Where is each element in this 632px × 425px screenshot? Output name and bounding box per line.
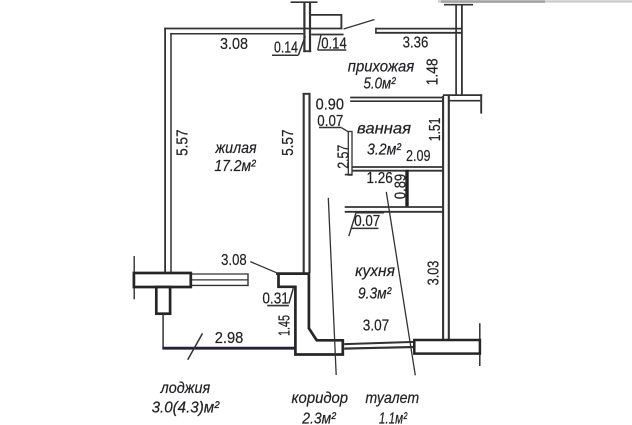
svg-text:3.36: 3.36 (403, 35, 429, 52)
svg-text:1.26: 1.26 (366, 170, 392, 187)
svg-text:5.0м²: 5.0м² (364, 76, 397, 93)
svg-text:2.3м²: 2.3м² (301, 411, 336, 425)
svg-text:1.1м²: 1.1м² (379, 411, 408, 425)
svg-text:3.0(4.3)м²: 3.0(4.3)м² (152, 400, 220, 417)
svg-text:кухня: кухня (355, 263, 395, 280)
svg-text:прихожая: прихожая (348, 59, 415, 76)
svg-text:коридор: коридор (292, 390, 349, 407)
svg-text:3.08: 3.08 (220, 36, 248, 53)
svg-text:3.07: 3.07 (363, 318, 390, 335)
svg-text:1.48: 1.48 (424, 58, 441, 85)
svg-text:9.3м²: 9.3м² (358, 285, 392, 302)
svg-text:0.14: 0.14 (274, 39, 298, 56)
svg-text:17.2м²: 17.2м² (214, 158, 256, 175)
svg-text:туалет: туалет (365, 390, 419, 407)
svg-text:3.08: 3.08 (221, 252, 247, 269)
svg-text:0.07: 0.07 (354, 213, 380, 230)
svg-text:1.51: 1.51 (427, 118, 444, 142)
svg-text:1.45: 1.45 (277, 315, 294, 336)
svg-text:2.57: 2.57 (335, 145, 352, 169)
svg-text:0.89: 0.89 (393, 174, 410, 199)
svg-text:0.14: 0.14 (321, 36, 347, 53)
svg-text:лоджия: лоджия (160, 380, 211, 397)
svg-text:жилая: жилая (215, 140, 257, 157)
svg-text:2.98: 2.98 (215, 330, 244, 347)
svg-text:3.03: 3.03 (425, 261, 442, 286)
svg-text:ванная: ванная (357, 120, 411, 137)
svg-text:3.2м²: 3.2м² (367, 142, 402, 159)
svg-text:0.07: 0.07 (317, 113, 343, 130)
svg-text:0.31: 0.31 (262, 290, 289, 307)
svg-text:5.57: 5.57 (280, 129, 297, 155)
svg-text:5.57: 5.57 (174, 129, 191, 155)
svg-text:2.09: 2.09 (406, 148, 431, 165)
svg-text:0.90: 0.90 (316, 96, 344, 113)
